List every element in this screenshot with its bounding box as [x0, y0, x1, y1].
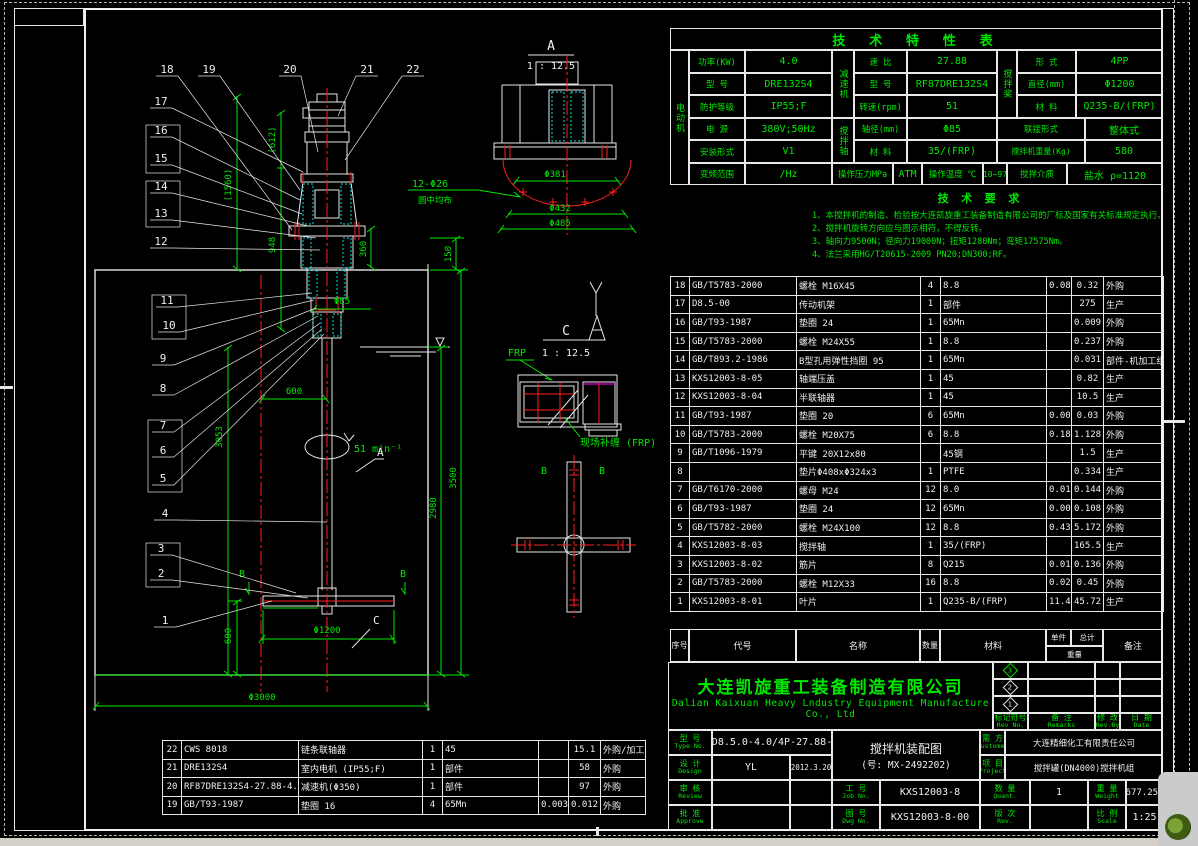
table-cell: KXS12003-8-03 — [690, 537, 797, 556]
bom-header-no: 序号 — [670, 629, 689, 662]
table-cell — [1047, 537, 1072, 556]
table-cell: 0.017 — [1047, 555, 1072, 574]
table-cell: 0.136 — [1072, 555, 1104, 574]
table-cell: 部件 — [941, 295, 1047, 314]
bom-header-weight: 重量 — [1046, 646, 1103, 662]
table-cell: GB/T893.2-1986 — [690, 351, 797, 370]
cad-sheet: (1560) (612) 948 360 150 Φ85 600 3053 51… — [0, 0, 1198, 846]
job-no-value: KXS12003-8 — [880, 780, 980, 805]
scale-label: 比 例Scale — [1088, 805, 1126, 830]
balloon-5: 5 — [160, 472, 167, 485]
type-no-label: 型 号Type No. — [668, 730, 712, 755]
table-row: 1KXS12003-8-01叶片1Q235-B/(FRP)11.4345.72生… — [671, 593, 1164, 612]
spec-label: 操作压力MPa — [832, 163, 893, 185]
table-cell: 螺母 M24 — [797, 481, 921, 500]
table-cell: 0.03 — [1072, 407, 1104, 426]
table-cell: 垫片Φ408xΦ324x3 — [797, 462, 921, 481]
project-value: 搅拌罐(DN4000)搅拌机组 — [1005, 755, 1163, 780]
dim-3500: 3500 — [449, 467, 459, 489]
table-cell — [539, 741, 569, 760]
table-cell: 0.431 — [1047, 518, 1072, 537]
table-cell: 12 — [921, 500, 941, 519]
table-cell: 8.8 — [941, 574, 1047, 593]
spec-value: 10~97 — [983, 163, 1007, 185]
spec-value: 27.88 — [907, 50, 997, 73]
section-a-callout: A — [377, 446, 384, 459]
spec-label: 安装形式 — [689, 140, 745, 163]
table-cell: 35/(FRP) — [941, 537, 1047, 556]
spec-value: 380V;50Hz — [745, 118, 832, 140]
table-cell: 外购 — [1104, 332, 1164, 351]
table-row: 22CWS 8018链条联轴器14515.1外购/加工 — [163, 741, 646, 760]
nvidia-overlay[interactable] — [1158, 772, 1198, 846]
rev-diamond-2: 2 — [1003, 680, 1019, 696]
spec-label: 直径(mm) — [1017, 73, 1076, 95]
table-cell: 生产 — [1104, 369, 1164, 388]
table-cell: 45 — [443, 741, 539, 760]
spec-table: 技 术 特 性 表 电动机 功率(KW) 4.0 减速机 速 比 27.88 搅… — [670, 28, 1163, 185]
rev-diamond-3: 3 — [1003, 663, 1019, 679]
balloon-7: 7 — [160, 419, 167, 432]
table-cell — [690, 462, 797, 481]
table-cell: 45.72 — [1072, 593, 1104, 612]
table-cell: 65Mn — [941, 500, 1047, 519]
table-row: 13KXS12003-8-05轴端压盖1450.82生产 — [671, 369, 1164, 388]
balloon-22: 22 — [406, 63, 419, 76]
dim-phi3000: Φ3000 — [248, 693, 275, 703]
spec-value: 4.0 — [745, 50, 832, 73]
table-cell: 0.012 — [569, 796, 601, 815]
dim-phi432: Φ432 — [549, 204, 571, 214]
spec-value: DRE132S4 — [745, 73, 832, 95]
table-cell: 垫圈 16 — [299, 796, 423, 815]
title-block: 大连凯旋重工装备制造有限公司 Dalian Kaixuan Heavy Lndu… — [668, 662, 1163, 830]
table-cell: 传动机架 — [797, 295, 921, 314]
dim-612: (612) — [268, 126, 278, 153]
table-cell: 平键 20X12x80 — [797, 444, 921, 463]
dim-600h: 600 — [286, 387, 302, 397]
rev-empty — [1028, 696, 1095, 713]
table-cell: 外购 — [1104, 574, 1164, 593]
table-cell: 6 — [921, 407, 941, 426]
table-cell: KXS12003-8-05 — [690, 369, 797, 388]
taskbar-strip — [0, 838, 1198, 846]
spec-label: 操作温度 ℃ — [922, 163, 983, 185]
tech-req-line: 3、轴向力9500N；径向力19000N；扭矩1280Nm；弯矩17575Nm。 — [812, 236, 1166, 249]
spec-label: 形 式 — [1017, 50, 1076, 73]
table-cell: 室内电机 (IP55;F) — [299, 759, 423, 778]
detail-a-title: A — [547, 39, 555, 54]
revby-header: 修 改Rev.By — [1095, 713, 1120, 730]
table-cell — [539, 759, 569, 778]
bom-header-material: 材料 — [940, 629, 1046, 662]
bom-table: 18GB/T5783-2000螺栓 M16X4548.80.080.32外购17… — [670, 276, 1164, 612]
table-cell: 5.172 — [1072, 518, 1104, 537]
table-cell: 螺栓 M12X33 — [797, 574, 921, 593]
table-row: 21DRE132S4室内电机 (IP55;F)1部件58外购 — [163, 759, 646, 778]
quantity-value: 1 — [1030, 780, 1088, 805]
dim-phi85: Φ85 — [334, 297, 350, 307]
tech-req-title: 技 术 要 求 — [900, 190, 1060, 206]
table-cell: 19 — [163, 796, 182, 815]
bom-header-name: 名称 — [796, 629, 920, 662]
table-cell: 外购 — [1104, 314, 1164, 333]
edge-tick-right — [1163, 420, 1185, 423]
spec-group-reducer: 减速机 — [832, 50, 854, 118]
table-cell: 6 — [921, 425, 941, 444]
detail-c-title: C — [562, 324, 570, 339]
table-cell: 11.43 — [1047, 593, 1072, 612]
table-cell: 10.5 — [1072, 388, 1104, 407]
balloon-9: 9 — [160, 352, 167, 365]
table-cell: 10 — [671, 425, 690, 444]
table-row: 10GB/T5783-2000螺栓 M20X7568.80.1881.128外购 — [671, 425, 1164, 444]
table-cell: CWS 8018 — [182, 741, 299, 760]
balloon-19: 19 — [202, 63, 215, 76]
table-cell: 筋片 — [797, 555, 921, 574]
table-cell: 3 — [671, 555, 690, 574]
table-cell: 生产 — [1104, 537, 1164, 556]
table-cell: 0.009 — [1072, 314, 1104, 333]
dim-360: 360 — [359, 241, 369, 257]
table-row: 4KXS12003-8-03搅拌轴135/(FRP)165.5生产 — [671, 537, 1164, 556]
table-cell: 螺栓 M16X45 — [797, 277, 921, 296]
table-cell — [921, 444, 941, 463]
table-cell: 8.8 — [941, 277, 1047, 296]
table-cell: 9 — [671, 444, 690, 463]
table-cell: 4 — [671, 537, 690, 556]
table-cell: 22 — [163, 741, 182, 760]
company-name-cn: 大连凯旋重工装备制造有限公司 — [698, 673, 964, 698]
bom-header-remark: 备注 — [1103, 629, 1163, 662]
table-cell: 垫圈 20 — [797, 407, 921, 426]
table-cell: 13 — [671, 369, 690, 388]
dim-2980: 2980 — [429, 497, 439, 519]
table-cell: 0.005 — [1047, 407, 1072, 426]
table-cell: 0.108 — [1072, 500, 1104, 519]
table-cell: 1 — [423, 778, 443, 797]
rev-diamond-cell: 1 — [993, 696, 1028, 713]
table-cell: 11 — [671, 407, 690, 426]
table-cell: 0.45 — [1072, 574, 1104, 593]
table-cell — [1047, 388, 1072, 407]
table-cell: 0.82 — [1072, 369, 1104, 388]
project-label: 项 目Project — [980, 755, 1005, 780]
table-cell: 0.188 — [1047, 425, 1072, 444]
table-cell: 外购 — [601, 759, 646, 778]
table-cell — [1047, 369, 1072, 388]
table-cell: 8.8 — [941, 332, 1047, 351]
table-cell: 8.0 — [941, 481, 1047, 500]
table-cell: 外购 — [1104, 481, 1164, 500]
spec-value: RF87DRE132S4 — [907, 73, 997, 95]
table-cell: GB/T6170-2000 — [690, 481, 797, 500]
spec-value: V1 — [745, 140, 832, 163]
balloon-17: 17 — [154, 95, 167, 108]
table-row: 5GB/T5782-2000螺栓 M24X100128.80.4315.172外… — [671, 518, 1164, 537]
spec-label: 联接形式 — [997, 118, 1085, 140]
table-cell: 外购 — [1104, 425, 1164, 444]
table-cell — [1047, 444, 1072, 463]
balloon-1: 1 — [162, 614, 169, 627]
customer-value: 大连精细化工有限责任公司 — [1005, 730, 1163, 755]
table-cell: GB/T5783-2000 — [690, 277, 797, 296]
bottom-left-table: 22CWS 8018链条联轴器14515.1外购/加工21DRE132S4室内电… — [162, 740, 646, 815]
balloon-13: 13 — [154, 207, 167, 220]
table-cell: 螺栓 M24X100 — [797, 518, 921, 537]
bom-header-unit: 单件 — [1046, 629, 1071, 646]
table-cell: GB/T93-1987 — [690, 407, 797, 426]
table-row: 17D8.5-00传动机架1部件275生产 — [671, 295, 1164, 314]
table-cell: 1 — [921, 351, 941, 370]
table-cell: 65Mn — [941, 407, 1047, 426]
edge-tick-left — [0, 386, 13, 389]
rev-empty — [1028, 679, 1095, 696]
rev-empty — [1095, 696, 1120, 713]
tech-req-line: 1、本搅拌机的制造、检验按大连凯旋重工装备制造有限公司的厂标及国家有关标准规定执… — [812, 210, 1166, 223]
spec-label: 材 料 — [854, 140, 907, 163]
table-cell: PTFE — [941, 462, 1047, 481]
table-cell: 12 — [921, 518, 941, 537]
section-b-right: B — [400, 569, 406, 580]
balloon-2: 2 — [158, 567, 165, 580]
table-cell: 14 — [671, 351, 690, 370]
spec-label: 型 号 — [689, 73, 745, 95]
design-value: YL — [712, 755, 790, 780]
dim-948: 948 — [268, 237, 278, 253]
table-cell: KXS12003-8-01 — [690, 593, 797, 612]
table-cell: 1.128 — [1072, 425, 1104, 444]
table-cell: 18 — [671, 277, 690, 296]
bom-header-qty: 数量 — [920, 629, 940, 662]
table-cell: 生产 — [1104, 295, 1164, 314]
table-cell: 1 — [921, 369, 941, 388]
spec-label: 速 比 — [854, 50, 907, 73]
spec-value: 4PP — [1076, 50, 1163, 73]
dwg-no-label: 图 号Dwg No. — [832, 805, 880, 830]
liquid-level — [360, 347, 450, 356]
edge-tick-bottom — [596, 827, 599, 836]
table-cell: 21 — [163, 759, 182, 778]
spec-label: 功率(KW) — [689, 50, 745, 73]
dim-phi1200: Φ1200 — [313, 626, 340, 636]
table-cell: 1 — [921, 537, 941, 556]
table-cell: 4 — [921, 277, 941, 296]
datum-triangle — [589, 316, 605, 340]
type-no-value: AD8.5.0-4.0/4P-27.88-P — [712, 730, 832, 755]
weld-y-symbol — [590, 282, 602, 303]
table-row: 6GB/T93-1987垫圈 241265Mn0.0090.108外购 — [671, 500, 1164, 519]
empty-cell — [790, 805, 832, 830]
rev-diamond-cell: 2 — [993, 679, 1028, 696]
spec-value: 35/(FRP) — [907, 140, 997, 163]
table-cell: 1 — [921, 593, 941, 612]
bom-header-row: 序号 代号 名称 数量 材料 单件 总计 重量 备注 — [670, 629, 1163, 662]
balloon-4: 4 — [162, 507, 169, 520]
table-cell: 链条联轴器 — [299, 741, 423, 760]
table-row: 16GB/T93-1987垫圈 24165Mn0.009外购 — [671, 314, 1164, 333]
remarks-header: 备 注Remarks — [1028, 713, 1095, 730]
table-row: 18GB/T5783-2000螺栓 M16X4548.80.080.32外购 — [671, 277, 1164, 296]
table-cell: GB/T1096-1979 — [690, 444, 797, 463]
table-cell: 0.028 — [1047, 574, 1072, 593]
company-name-en: Dalian Kaixuan Heavy Lndustry Equipment … — [672, 698, 989, 709]
rev-no-header: 标记符号Rev No. — [993, 713, 1028, 730]
rev-empty — [1028, 662, 1095, 679]
table-cell: 生产 — [1104, 388, 1164, 407]
rotation-arrow — [344, 433, 354, 441]
table-cell: GB/T93-1987 — [182, 796, 299, 815]
table-cell: GB/T93-1987 — [690, 314, 797, 333]
table-row: 3KXS12003-8-02筋片8Q2150.0170.136外购 — [671, 555, 1164, 574]
table-cell: 20 — [163, 778, 182, 797]
spec-value: ATM — [893, 163, 922, 185]
table-cell: 生产 — [1104, 462, 1164, 481]
table-cell: 65Mn — [443, 796, 539, 815]
spec-value: Φ1200 — [1076, 73, 1163, 95]
balloon-18: 18 — [160, 63, 173, 76]
table-cell: 45 — [941, 369, 1047, 388]
table-cell: 部件 — [443, 759, 539, 778]
table-cell — [1047, 295, 1072, 314]
bb-label-right: B — [599, 466, 605, 477]
table-cell: Q235-B/(FRP) — [941, 593, 1047, 612]
section-b-left: B — [239, 569, 245, 580]
frp-label: FRP — [508, 348, 526, 359]
spec-label: 防护等级 — [689, 95, 745, 118]
table-cell: 外购/加工 — [601, 741, 646, 760]
approve-label: 批 准Approve — [668, 805, 712, 830]
rev-value — [1030, 805, 1088, 830]
table-cell: 外购 — [601, 796, 646, 815]
table-cell: GB/T5783-2000 — [690, 425, 797, 444]
dim-150: 150 — [444, 246, 454, 262]
table-cell: 1 — [921, 332, 941, 351]
drawing-model-no: (号: MX-2492202) — [861, 757, 951, 771]
table-cell: 17 — [671, 295, 690, 314]
bom-header-weight-group: 单件 总计 重量 — [1046, 629, 1103, 662]
bom-header-code: 代号 — [689, 629, 796, 662]
weight-label: 重 量Weight — [1088, 780, 1126, 805]
table-cell: 轴端压盖 — [797, 369, 921, 388]
table-row: 2GB/T5783-2000螺栓 M12X33168.80.0280.45外购 — [671, 574, 1164, 593]
table-cell: 8 — [921, 555, 941, 574]
spec-value: 盐水 ρ=1120 — [1067, 163, 1163, 185]
table-cell: B型孔用弹性挡圈 95 — [797, 351, 921, 370]
section-c-callout: C — [373, 614, 380, 627]
table-cell: KXS12003-8-02 — [690, 555, 797, 574]
table-cell: KXS12003-8-04 — [690, 388, 797, 407]
table-cell: 螺栓 M20X75 — [797, 425, 921, 444]
table-cell: RF87DRE132S4-27.88-4.0Kw — [182, 778, 299, 797]
table-cell: 垫圈 24 — [797, 314, 921, 333]
table-row: 7GB/T6170-2000螺母 M24128.00.0120.144外购 — [671, 481, 1164, 500]
nvidia-eye-icon — [1165, 814, 1191, 840]
table-cell: 螺栓 M24X55 — [797, 332, 921, 351]
job-no-label: 工 号Job No. — [832, 780, 880, 805]
company-cell: 大连凯旋重工装备制造有限公司 Dalian Kaixuan Heavy Lndu… — [668, 662, 993, 730]
bom-header-total: 总计 — [1071, 629, 1103, 646]
table-cell: 5 — [671, 518, 690, 537]
spec-value: 51 — [907, 95, 997, 118]
table-cell: 16 — [671, 314, 690, 333]
table-cell: 7 — [671, 481, 690, 500]
table-cell: 165.5 — [1072, 537, 1104, 556]
tech-requirements: 技 术 要 求 1、本搅拌机的制造、检验按大连凯旋重工装备制造有限公司的厂标及国… — [670, 188, 1163, 274]
table-cell: 1 — [921, 314, 941, 333]
table-cell: 半联轴器 — [797, 388, 921, 407]
date-header: 日 期Date — [1120, 713, 1163, 730]
spec-table-title: 技 术 特 性 表 — [670, 28, 1163, 50]
spec-label: 轴径(mm) — [854, 118, 907, 140]
table-cell: 外购 — [1104, 407, 1164, 426]
table-cell: GB/T93-1987 — [690, 500, 797, 519]
balloon-11: 11 — [160, 294, 173, 307]
detail-c-scale: 1 : 12.5 — [542, 348, 590, 359]
dim-3053: 3053 — [215, 426, 225, 448]
table-cell: 生产 — [1104, 593, 1164, 612]
table-cell: 0.237 — [1072, 332, 1104, 351]
tech-req-line: 2、搅拌机旋转方向应与图示相符，不得反转。 — [812, 223, 1166, 236]
table-cell: 2 — [671, 574, 690, 593]
table-cell: 4 — [423, 796, 443, 815]
spec-label: 型 号 — [854, 73, 907, 95]
detail-c: C 1 : 12.5 FRP 现场补缠 (FRP) — [506, 282, 656, 449]
balloon-6: 6 — [160, 444, 167, 457]
balloon-15: 15 — [154, 152, 167, 165]
section-a-leader — [356, 459, 384, 472]
table-cell: 1 — [921, 462, 941, 481]
table-cell: 0.08 — [1047, 277, 1072, 296]
table-row: 15GB/T5783-2000螺栓 M24X5518.80.237外购 — [671, 332, 1164, 351]
dwg-no-value: KXS12003-8-00 — [880, 805, 980, 830]
design-label: 设 计Design — [668, 755, 712, 780]
table-cell: 外购 — [601, 778, 646, 797]
spec-label: 搅拌机重量(Kg) — [997, 140, 1085, 163]
table-cell: 外购 — [1104, 500, 1164, 519]
table-cell: 8.8 — [941, 425, 1047, 444]
table-cell: 0.334 — [1072, 462, 1104, 481]
table-cell: 275 — [1072, 295, 1104, 314]
spec-group-shaft: 搅拌轴 — [832, 118, 854, 163]
spec-label: 变频范围 — [689, 163, 745, 185]
holes-label: 12-Φ26 — [412, 179, 448, 190]
table-cell: 8 — [671, 462, 690, 481]
table-cell: 8.8 — [941, 518, 1047, 537]
table-cell — [1047, 351, 1072, 370]
tech-req-line: 4、法兰采用HG/T20615-2009 PN20;DN300;RF。 — [812, 249, 1166, 262]
table-cell: 12 — [671, 388, 690, 407]
table-cell: 0.031 — [1072, 351, 1104, 370]
table-row: 19GB/T93-1987垫圈 16465Mn0.0030.012外购 — [163, 796, 646, 815]
spec-value: Φ85 — [907, 118, 997, 140]
table-row: 12KXS12003-8-04半联轴器14510.5生产 — [671, 388, 1164, 407]
section-bb-view: B B — [511, 455, 636, 618]
table-cell: D8.5-00 — [690, 295, 797, 314]
spec-label: 搅拌介质 — [1007, 163, 1067, 185]
table-cell: 6 — [671, 500, 690, 519]
table-cell: 0.012 — [1047, 481, 1072, 500]
level-triangle — [436, 338, 444, 346]
table-cell — [539, 778, 569, 797]
spec-group-motor: 电动机 — [670, 50, 689, 185]
drawing-name-cell: 搅拌机装配图 (号: MX-2492202) — [832, 730, 980, 780]
balloon-12: 12 — [154, 235, 167, 248]
spec-label: 材 料 — [1017, 95, 1076, 118]
table-cell: 0.009 — [1047, 500, 1072, 519]
table-cell: 0.003 — [539, 796, 569, 815]
table-cell: 1 — [423, 741, 443, 760]
